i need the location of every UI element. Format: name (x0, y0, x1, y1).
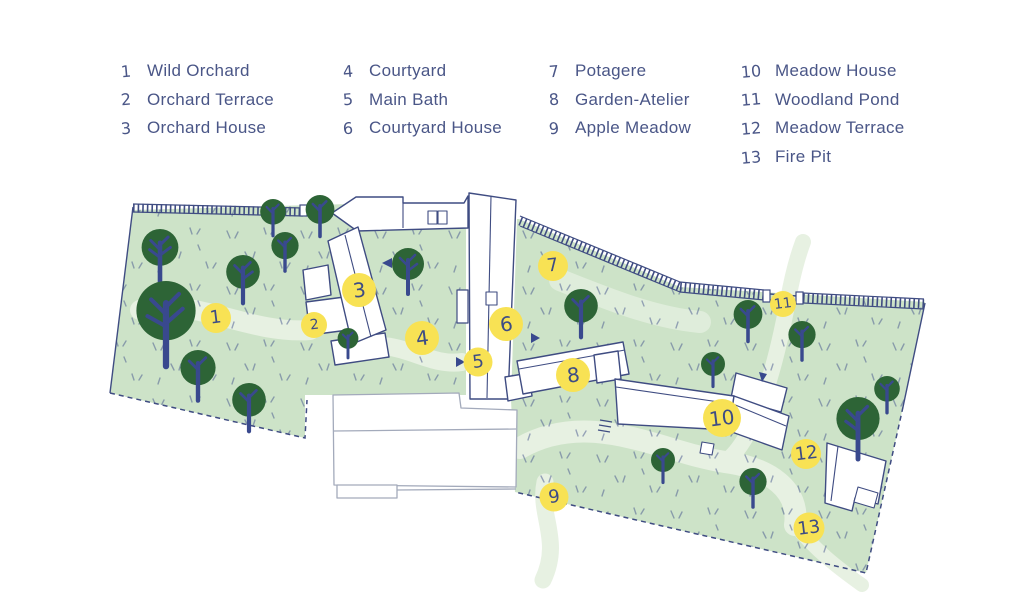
building-neighbor (333, 393, 517, 498)
site-map (0, 0, 1024, 614)
map-marker-9: 9 (540, 483, 569, 512)
map-marker-3: 3 (342, 273, 376, 307)
building-north-strip (332, 196, 468, 231)
map-marker-2: 2 (301, 312, 327, 338)
map-marker-5: 5 (464, 348, 493, 377)
map-marker-12: 12 (791, 439, 821, 469)
map-marker-4: 4 (405, 321, 439, 355)
map-marker-10: 10 (703, 399, 741, 437)
map-marker-1: 1 (201, 303, 231, 333)
map-marker-7: 7 (538, 251, 568, 281)
map-marker-11: 11 (770, 291, 796, 317)
map-marker-13: 13 (794, 513, 825, 544)
map-marker-8: 8 (556, 358, 590, 392)
site-plan-page: 1 Wild Orchard 2 Orchard Terrace 3 Orcha… (0, 0, 1024, 614)
map-marker-6: 6 (489, 307, 523, 341)
